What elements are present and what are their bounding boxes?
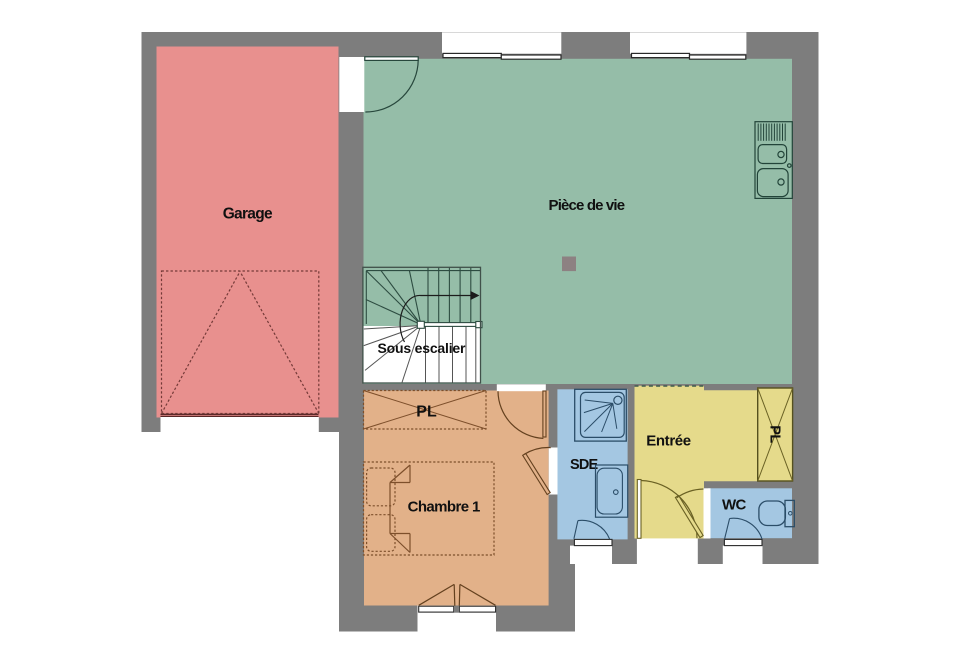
svg-text:SDE: SDE: [570, 457, 599, 473]
svg-text:Garage: Garage: [223, 206, 273, 223]
svg-text:PL: PL: [416, 404, 437, 421]
svg-text:Pièce de vie: Pièce de vie: [549, 197, 625, 214]
svg-text:Chambre 1: Chambre 1: [408, 499, 480, 516]
svg-text:PL: PL: [767, 425, 783, 443]
svg-text:Entrée: Entrée: [646, 433, 691, 450]
svg-text:Sous escalier: Sous escalier: [378, 340, 466, 356]
svg-text:WC: WC: [722, 496, 746, 513]
